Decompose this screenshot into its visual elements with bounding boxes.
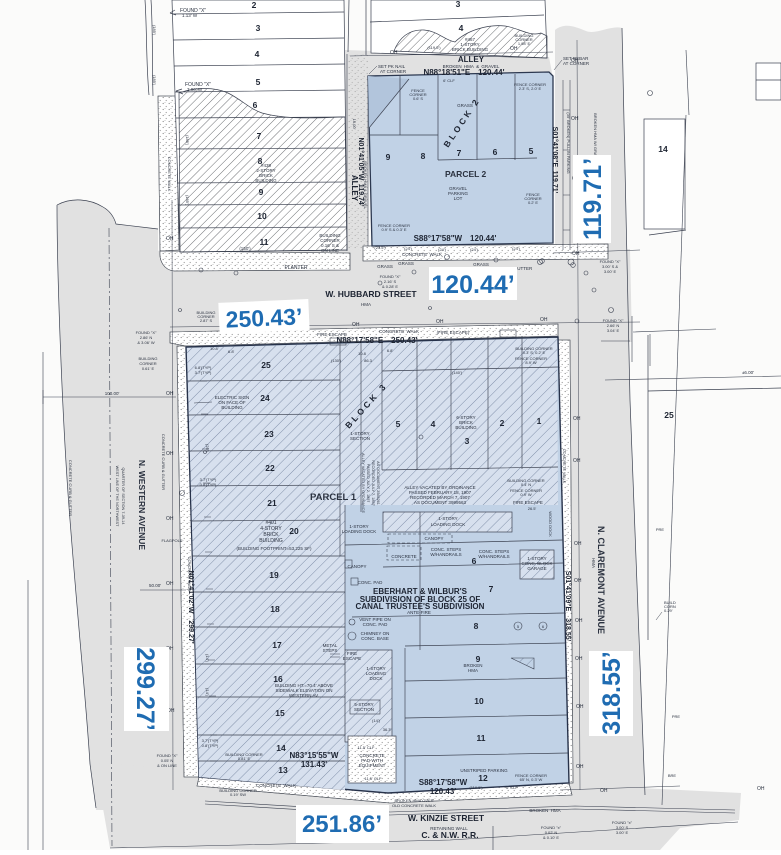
svg-text:5: 5 [256, 77, 261, 87]
svg-text:OH: OH [390, 50, 398, 56]
svg-text:CONCRETE WALK: CONCRETE WALK [167, 157, 172, 192]
svg-text:BUILDING: BUILDING [259, 538, 283, 544]
svg-text:DOCK: DOCK [369, 676, 382, 681]
svg-text:(14'): (14') [372, 718, 381, 723]
svg-text:BRE: BRE [668, 773, 677, 778]
svg-text:(185'): (185') [185, 195, 190, 206]
svg-text:65' N, 0.3' W: 65' N, 0.3' W [520, 777, 543, 782]
svg-text:CONC. PAD: CONC. PAD [358, 580, 383, 585]
svg-text:OH: OH [573, 416, 581, 422]
svg-text:& ON LINE: & ON LINE [157, 763, 177, 768]
svg-text:1.13' W: 1.13' W [182, 13, 198, 18]
svg-text:6.8': 6.8' [228, 349, 235, 354]
svg-text:& 3.06' W: & 3.06' W [137, 340, 154, 345]
svg-text:N88°17'58"E 250.43': N88°17'58"E 250.43' [336, 336, 417, 345]
svg-text:CANOPY: CANOPY [424, 536, 443, 541]
svg-text:OH: OH [166, 391, 174, 397]
svg-text:1: 1 [537, 416, 542, 426]
svg-text:16.00': 16.00' [352, 119, 357, 130]
svg-text:36.3': 36.3' [383, 727, 392, 732]
svg-text:26.5': 26.5' [528, 506, 537, 511]
svg-text:8: 8 [474, 621, 479, 631]
svg-text:21: 21 [267, 498, 277, 508]
svg-text:PASSED JULY 2, 1897: PASSED JULY 2, 1897 [366, 464, 370, 503]
svg-text:(185'): (185') [152, 75, 157, 86]
svg-text:(FIRE ESCAPE): (FIRE ESCAPE) [437, 330, 470, 335]
svg-text:LOT: LOT [454, 196, 463, 201]
svg-text:10: 10 [474, 696, 484, 706]
svg-text:ESCAPE: ESCAPE [343, 656, 361, 661]
svg-text:6: 6 [253, 100, 258, 110]
svg-text:7: 7 [257, 131, 262, 141]
svg-text:0.3' S, 0.2' E: 0.3' S, 0.2' E [523, 350, 546, 355]
svg-text:318.55’: 318.55’ [598, 651, 626, 734]
svg-text:0.61' E: 0.61' E [142, 366, 155, 371]
svg-text:ANTE-FIRE: ANTE-FIRE [407, 610, 431, 615]
svg-text:6: 6 [472, 556, 477, 566]
svg-text:N. CLAREMONT AVENUE: N. CLAREMONT AVENUE [596, 526, 606, 634]
svg-text:19: 19 [269, 570, 279, 580]
svg-text:CONCRETE: CONCRETE [391, 554, 416, 559]
svg-text:ALLEY: ALLEY [350, 175, 359, 202]
svg-text:ON LINE: ON LINE [321, 248, 339, 253]
svg-text:10.8: 10.8 [358, 351, 367, 356]
svg-text:OH: OH [757, 786, 765, 792]
svg-text:OH: OH [166, 581, 174, 587]
svg-text:BROKEN HMA & GRAVEL: BROKEN HMA & GRAVEL [363, 161, 368, 209]
svg-text:BRICK BUILDING: BRICK BUILDING [452, 47, 489, 52]
svg-text:10: 10 [257, 211, 267, 221]
svg-text:0.2' E: 0.2' E [528, 200, 538, 205]
svg-text:CONCRETE CURB & GUTTER: CONCRETE CURB & GUTTER [161, 434, 166, 490]
svg-text:GRASS: GRASS [473, 262, 489, 267]
svg-text:OH: OH [574, 578, 582, 584]
svg-text:(23.5'): (23.5') [374, 245, 386, 250]
svg-text:(130'): (130') [331, 358, 342, 363]
svg-text:(24'): (24') [470, 247, 479, 252]
svg-text:S88°17'58"W 120.44': S88°17'58"W 120.44' [414, 234, 497, 243]
svg-text:PARCEL 2: PARCEL 2 [445, 169, 487, 179]
svg-text:0.6' S: 0.6' S [413, 96, 423, 101]
svg-text:C. & N.W. R.R.: C. & N.W. R.R. [421, 830, 478, 840]
svg-text:CONCRETE WALK: CONCRETE WALK [256, 783, 296, 788]
svg-text:OH: OH [571, 116, 579, 122]
svg-text:8: 8 [421, 151, 426, 161]
svg-text:25: 25 [261, 360, 271, 370]
svg-text:OH: OH [600, 788, 608, 794]
svg-text:(119.5'): (119.5') [427, 45, 441, 50]
svg-text:9: 9 [386, 152, 391, 162]
svg-text:22: 22 [265, 463, 275, 473]
svg-text:SECTION: SECTION [354, 707, 374, 712]
svg-text:GARAGE: GARAGE [527, 566, 546, 571]
svg-text:WOOD DOCK: WOOD DOCK [548, 511, 553, 537]
svg-text:CONCRETE WALK: CONCRETE WALK [402, 252, 442, 257]
svg-text:& 0.10' E: & 0.10' E [543, 835, 559, 840]
svg-text:4: 4 [459, 23, 464, 33]
svg-text:3.00' E: 3.00' E [604, 269, 617, 274]
svg-text:UNSTRIPED PARKING: UNSTRIPED PARKING [460, 768, 508, 773]
svg-text:BUILDING: BUILDING [255, 178, 277, 183]
svg-text:1-STORY: 1-STORY [438, 516, 457, 521]
svg-text:13: 13 [278, 765, 288, 775]
svg-text:FIRE ESCAPE: FIRE ESCAPE [317, 332, 347, 337]
svg-text:2.3' S, 2.0' E: 2.3' S, 2.0' E [519, 86, 542, 91]
svg-text:15: 15 [275, 708, 285, 718]
svg-text:120.43': 120.43' [430, 787, 456, 796]
svg-text:24: 24 [260, 393, 270, 403]
svg-text:3.00' E: 3.00' E [616, 830, 629, 835]
svg-text:2: 2 [252, 0, 257, 10]
svg-text:SECTION: SECTION [350, 436, 370, 441]
svg-text:RECORDED JULY 7, 1897: RECORDED JULY 7, 1897 [371, 460, 375, 505]
svg-text:5: 5 [396, 419, 401, 429]
svg-text:OH: OH [436, 319, 444, 325]
svg-text:N88°18'51"E 120.44': N88°18'51"E 120.44' [423, 68, 504, 77]
svg-text:120.44’: 120.44’ [431, 271, 514, 299]
svg-text:(14'): (14') [205, 688, 210, 697]
svg-text:11: 11 [477, 733, 486, 743]
svg-text:(24'): (24') [512, 246, 521, 251]
svg-text:3: 3 [456, 0, 461, 9]
svg-text:20: 20 [289, 526, 299, 536]
svg-text:OH: OH [571, 58, 579, 64]
svg-text:WESTERN AV.: WESTERN AV. [289, 693, 319, 698]
svg-text:& 0.28' E: & 0.28' E [382, 284, 398, 289]
svg-text:AS DOCUMENT 2566261: AS DOCUMENT 2566261 [376, 461, 380, 505]
svg-text:W. KINZIE STREET: W. KINZIE STREET [408, 813, 485, 823]
svg-text:5: 5 [529, 146, 534, 156]
svg-text:GRASS: GRASS [457, 103, 473, 108]
svg-text:0.29': 0.29' [664, 608, 673, 613]
svg-text:14: 14 [658, 144, 668, 154]
svg-text:3: 3 [465, 436, 470, 446]
svg-text:N. WESTERN AVENUE: N. WESTERN AVENUE [137, 460, 147, 551]
svg-text:(185'): (185') [152, 25, 157, 36]
svg-text:PRE: PRE [656, 527, 665, 532]
svg-text:OH: OH [540, 317, 548, 323]
svg-text:W/HANDRAILS: W/HANDRAILS [430, 552, 461, 557]
svg-text:9: 9 [259, 187, 264, 197]
svg-text:PRE: PRE [672, 714, 681, 719]
svg-text:2: 2 [500, 418, 505, 428]
svg-text:250.43’: 250.43’ [225, 303, 303, 332]
svg-text:W/HANDRAILS: W/HANDRAILS [478, 554, 509, 559]
svg-text:(140'): (140') [452, 370, 463, 375]
svg-text:(119.5'): (119.5') [469, 785, 483, 790]
svg-text:BUILDING: BUILDING [455, 425, 477, 430]
svg-text:12: 12 [478, 773, 488, 783]
svg-text:FIRE ESCAPE: FIRE ESCAPE [513, 500, 543, 505]
svg-text:OH: OH [574, 541, 582, 547]
svg-text:11.5' CLF: 11.5' CLF [358, 745, 375, 750]
svg-text:131.43': 131.43' [301, 760, 327, 769]
svg-text:17: 17 [272, 640, 282, 650]
svg-text:11.5' CLF: 11.5' CLF [365, 776, 382, 781]
svg-text:0.81' E: 0.81' E [238, 756, 251, 761]
svg-text:HMA: HMA [361, 302, 371, 307]
svg-text:OH: OH [575, 618, 583, 624]
svg-text:OH: OH [576, 704, 584, 710]
svg-text:BROKEN HMA: BROKEN HMA [529, 808, 560, 813]
svg-text:OH: OH [166, 516, 174, 522]
svg-text:0.8'(TYP): 0.8'(TYP) [202, 743, 219, 748]
svg-text:OH: OH [166, 236, 174, 242]
svg-text:OH: OH [166, 451, 174, 457]
svg-text:CONCRETE WALK: CONCRETE WALK [562, 449, 567, 484]
svg-text:86.3: 86.3 [364, 358, 373, 363]
svg-text:HMA: HMA [468, 668, 478, 673]
svg-text:0.19' SW: 0.19' SW [230, 792, 246, 797]
svg-text:11: 11 [260, 237, 269, 247]
svg-text:6' CLF: 6' CLF [506, 785, 518, 790]
svg-text:N83°15'55"W: N83°15'55"W [290, 751, 339, 760]
svg-text:50.00': 50.00' [149, 583, 161, 588]
svg-text:GRASS: GRASS [377, 264, 393, 269]
svg-text:8.9' W: 8.9' W [525, 360, 536, 365]
svg-text:6.8': 6.8' [387, 348, 394, 353]
svg-text:±6.00': ±6.00' [742, 370, 754, 375]
svg-text:(25'): (25') [205, 444, 210, 453]
svg-text:EQUIPMENT: EQUIPMENT [359, 763, 386, 768]
svg-text:3.04' E: 3.04' E [607, 328, 620, 333]
svg-text:CONCRETE WALK: CONCRETE WALK [187, 557, 192, 592]
svg-text:10.8': 10.8' [210, 346, 219, 351]
svg-text:OH: OH [575, 656, 583, 662]
svg-text:OH: OH [572, 251, 580, 257]
svg-text:3.00' W: 3.00' W [187, 87, 203, 92]
svg-text:WEST LINE OF THE NORTHWEST: WEST LINE OF THE NORTHWEST [115, 466, 119, 527]
svg-text:W. HUBBARD STREET: W. HUBBARD STREET [325, 289, 417, 299]
svg-text:(24'): (24') [404, 246, 413, 251]
svg-text:(14'): (14') [205, 654, 210, 663]
svg-text:STEPS: STEPS [323, 648, 338, 653]
svg-text:4: 4 [255, 49, 260, 59]
svg-text:BROKEN HMA & GRAVEL: BROKEN HMA & GRAVEL [443, 64, 500, 69]
svg-text:(BUILDING FOOTPRINT=53,225 SF): (BUILDING FOOTPRINT=53,225 SF) [237, 546, 312, 551]
svg-text:2.87' S: 2.87' S [200, 318, 213, 323]
svg-text:BUILDING: BUILDING [221, 405, 243, 410]
svg-text:PLANTER: PLANTER [284, 265, 307, 271]
svg-text:FLAGPOLE: FLAGPOLE [161, 538, 182, 543]
svg-text:S88°17'58"W: S88°17'58"W [419, 778, 468, 787]
svg-text:ALLEY: ALLEY [458, 55, 485, 64]
svg-text:25: 25 [664, 410, 674, 420]
svg-text:119.71’: 119.71’ [579, 158, 607, 240]
svg-text:0.8'(TYP): 0.8'(TYP) [200, 482, 217, 487]
svg-text:HMA: HMA [591, 558, 596, 568]
svg-text:LOADING DOCK: LOADING DOCK [342, 529, 377, 534]
svg-text:18: 18 [270, 604, 280, 614]
svg-text:4: 4 [431, 419, 436, 429]
svg-text:CONCRETE WALK: CONCRETE WALK [379, 329, 419, 334]
svg-text:S01°41'09"E 318.55': S01°41'09"E 318.55' [564, 571, 572, 642]
svg-text:299.27’: 299.27’ [131, 647, 159, 730]
svg-text:OLD CONCRETE WALK: OLD CONCRETE WALK [392, 803, 436, 808]
svg-text:PARCEL 1: PARCEL 1 [310, 492, 357, 503]
svg-text:6: 6 [493, 147, 498, 157]
svg-text:(185'): (185') [185, 135, 190, 146]
svg-text:14: 14 [276, 743, 286, 753]
svg-text:AS DOCUMENT 3999563: AS DOCUMENT 3999563 [414, 500, 466, 505]
svg-text:OH: OH [573, 458, 581, 464]
svg-text:CONC. BASE: CONC. BASE [361, 636, 389, 641]
svg-text:OH: OH [352, 322, 360, 328]
svg-text:0.9' S & 0.3' E: 0.9' S & 0.3' E [381, 227, 406, 232]
svg-text:CONCRETE CURB & GUTTER: CONCRETE CURB & GUTTER [68, 460, 73, 516]
svg-text:6' CLF: 6' CLF [443, 78, 455, 83]
svg-text:GRASS: GRASS [398, 261, 414, 266]
svg-text:100.00': 100.00' [105, 391, 120, 396]
svg-text:(150'): (150') [239, 246, 251, 251]
svg-text:7: 7 [457, 148, 462, 158]
svg-text:CONC. PAD: CONC. PAD [363, 622, 388, 627]
svg-text:S01°41'08"E 119.71': S01°41'08"E 119.71' [551, 127, 559, 194]
svg-text:OH: OH [576, 764, 584, 770]
svg-text:OH: OH [510, 46, 518, 52]
svg-text:ALLEY VACATED BY ORDINANCE: ALLEY VACATED BY ORDINANCE [361, 453, 365, 514]
svg-text:0.9' W: 0.9' W [520, 492, 531, 497]
svg-text:23: 23 [264, 429, 274, 439]
svg-text:7: 7 [489, 584, 494, 594]
svg-text:1.98' E: 1.98' E [518, 41, 531, 46]
svg-text:AT CORNER: AT CORNER [380, 69, 407, 74]
svg-text:251.86’: 251.86’ [302, 811, 382, 838]
svg-text:3: 3 [256, 23, 261, 33]
svg-text:LOADING DOCK: LOADING DOCK [431, 522, 466, 527]
svg-text:QUARTER OF SECTION 7-39-14: QUARTER OF SECTION 7-39-14 [121, 468, 125, 525]
svg-text:0.4' N: 0.4' N [521, 482, 531, 487]
svg-text:3.7'(TYP): 3.7'(TYP) [195, 370, 212, 375]
